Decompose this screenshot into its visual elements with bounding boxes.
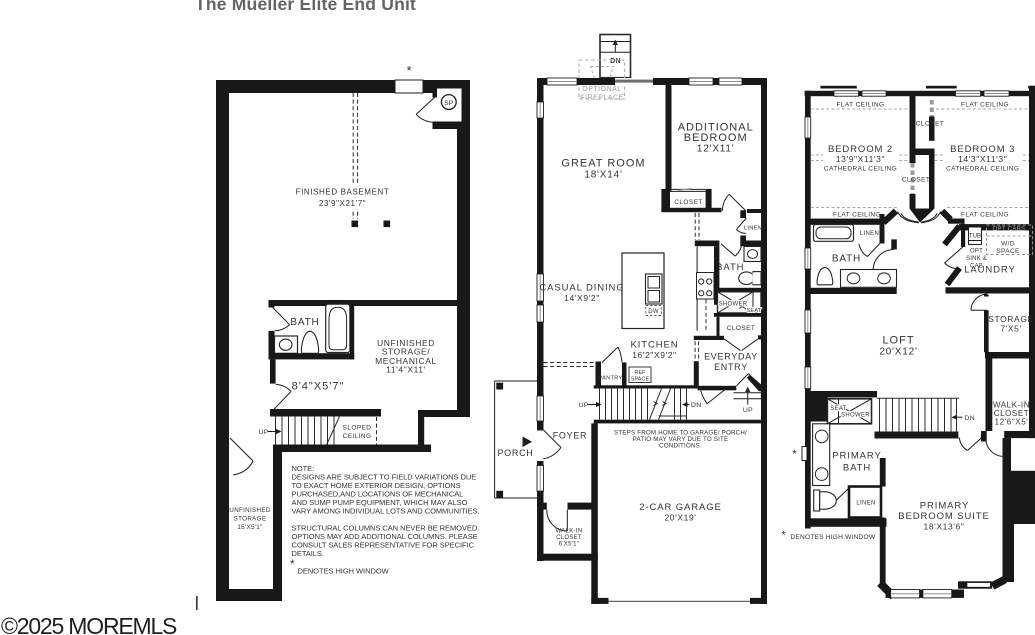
svg-text:*: * xyxy=(792,447,797,461)
svg-text:DENOTES HIGH WINDOW: DENOTES HIGH WINDOW xyxy=(791,534,876,541)
svg-text:12'6"X5': 12'6"X5' xyxy=(995,418,1029,427)
svg-text:OPT CABS: OPT CABS xyxy=(993,227,1026,233)
svg-text:UP: UP xyxy=(259,429,269,436)
svg-text:7'X5': 7'X5' xyxy=(1000,324,1021,334)
svg-text:20'X19': 20'X19' xyxy=(664,513,696,523)
svg-text:LINEN: LINEN xyxy=(860,231,879,237)
svg-text:STORAGE: STORAGE xyxy=(988,314,1034,324)
svg-text:12'X11': 12'X11' xyxy=(697,144,735,155)
svg-text:FLAT CEILING: FLAT CEILING xyxy=(837,101,885,108)
svg-text:BATH: BATH xyxy=(843,463,871,474)
svg-text:LINEN: LINEN xyxy=(856,501,875,507)
svg-text:16'2"X9'2": 16'2"X9'2" xyxy=(632,350,677,360)
svg-text:GREAT ROOM: GREAT ROOM xyxy=(561,158,645,170)
svg-text:CLOSET: CLOSET xyxy=(902,176,930,183)
svg-text:STORAGE/: STORAGE/ xyxy=(382,347,431,357)
svg-text:OPT: OPT xyxy=(970,249,983,255)
svg-text:LOFT: LOFT xyxy=(882,335,914,347)
svg-text:BATH: BATH xyxy=(290,317,319,328)
svg-text:VARY AMONG INDIVIDUAL LOTS AND: VARY AMONG INDIVIDUAL LOTS AND COMMUNITI… xyxy=(292,507,480,516)
svg-text:OPTIONAL: OPTIONAL xyxy=(582,86,621,93)
svg-text:DETAILS.: DETAILS. xyxy=(292,549,324,558)
svg-text:PORCH: PORCH xyxy=(497,448,533,458)
svg-text:FLAT CEILING: FLAT CEILING xyxy=(961,101,1009,108)
svg-text:ENTRY: ENTRY xyxy=(714,362,748,372)
svg-text:18'X14': 18'X14' xyxy=(584,170,622,181)
svg-text:SHOWER: SHOWER xyxy=(841,413,870,419)
svg-text:SP: SP xyxy=(444,100,454,107)
svg-text:TUB: TUB xyxy=(969,234,981,240)
svg-text:DN: DN xyxy=(965,415,976,422)
svg-text:DW: DW xyxy=(648,309,659,315)
svg-text:*: * xyxy=(406,63,411,78)
svg-text:BEDROOM SUITE: BEDROOM SUITE xyxy=(898,511,989,522)
svg-text:SEAT: SEAT xyxy=(830,406,846,412)
svg-text:CLOSET: CLOSET xyxy=(727,325,755,332)
svg-text:CLOSET: CLOSET xyxy=(556,535,582,541)
svg-text:UP: UP xyxy=(579,402,589,409)
svg-text:PRIMARY: PRIMARY xyxy=(920,501,969,512)
svg-text:W/D: W/D xyxy=(1001,241,1015,248)
svg-text:6'X5'1": 6'X5'1" xyxy=(559,542,580,548)
svg-text:CLOSET: CLOSET xyxy=(916,120,944,127)
svg-text:CAB: CAB xyxy=(970,264,983,270)
svg-text:2-CAR GARAGE: 2-CAR GARAGE xyxy=(639,502,722,513)
svg-text:WALK-IN: WALK-IN xyxy=(556,529,583,535)
svg-text:23'9"X21'7": 23'9"X21'7" xyxy=(319,199,366,208)
svg-text:FINISHED BASEMENT: FINISHED BASEMENT xyxy=(296,188,390,197)
svg-text:CATHEDRAL CEILING: CATHEDRAL CEILING xyxy=(946,166,1019,173)
svg-text:8'4"X5'7": 8'4"X5'7" xyxy=(292,381,345,393)
svg-text:15'X5'1": 15'X5'1" xyxy=(237,524,262,531)
svg-text:DN: DN xyxy=(610,58,621,65)
svg-text:CONDITIONS.: CONDITIONS. xyxy=(659,443,702,450)
svg-text:KITCHEN: KITCHEN xyxy=(631,340,679,351)
svg-text:SLOPED: SLOPED xyxy=(343,425,372,432)
svg-text:FIREPLACE: FIREPLACE xyxy=(580,95,623,102)
svg-text:FLAT CEILING: FLAT CEILING xyxy=(833,212,881,219)
svg-text:PRIMARY: PRIMARY xyxy=(832,451,881,462)
svg-text:UNFINISHED: UNFINISHED xyxy=(229,507,271,514)
svg-text:DN: DN xyxy=(691,402,702,409)
svg-text:EVERYDAY: EVERYDAY xyxy=(704,352,758,362)
svg-text:CATHEDRAL CEILING: CATHEDRAL CEILING xyxy=(824,166,897,173)
svg-text:BEDROOM: BEDROOM xyxy=(684,132,748,144)
svg-text:DENOTES HIGH WINDOW: DENOTES HIGH WINDOW xyxy=(298,567,390,576)
svg-text:SPACE: SPACE xyxy=(996,248,1020,255)
svg-text:11'4"X11': 11'4"X11' xyxy=(386,365,426,375)
svg-text:FLAT CEILING: FLAT CEILING xyxy=(961,212,1009,219)
svg-text:13'9"X11'3": 13'9"X11'3" xyxy=(836,154,885,164)
svg-text:14'X9'2": 14'X9'2" xyxy=(564,293,600,303)
svg-text:CLOSET: CLOSET xyxy=(674,199,702,206)
svg-text:SPACE: SPACE xyxy=(631,377,650,383)
svg-text:SINK &: SINK & xyxy=(966,256,987,262)
svg-text:*: * xyxy=(290,557,295,571)
svg-text:14'3"X11'3": 14'3"X11'3" xyxy=(958,154,1007,164)
svg-text:20'X12': 20'X12' xyxy=(879,347,917,358)
svg-text:*: * xyxy=(782,530,787,542)
svg-text:REF: REF xyxy=(634,370,646,376)
svg-text:LINEN: LINEN xyxy=(744,226,762,232)
svg-text:FOYER: FOYER xyxy=(553,431,588,441)
svg-text:UP: UP xyxy=(743,407,753,414)
svg-text:SHOWER: SHOWER xyxy=(719,302,748,308)
svg-text:CEILING: CEILING xyxy=(343,433,372,440)
svg-text:CASUAL DINING: CASUAL DINING xyxy=(539,283,624,294)
svg-text:BATH: BATH xyxy=(832,254,861,265)
svg-text:18'X13'6": 18'X13'6" xyxy=(924,522,965,532)
svg-text:PANTRY: PANTRY xyxy=(598,376,622,382)
svg-text:STORAGE: STORAGE xyxy=(234,516,267,523)
svg-text:BATH: BATH xyxy=(716,262,744,273)
